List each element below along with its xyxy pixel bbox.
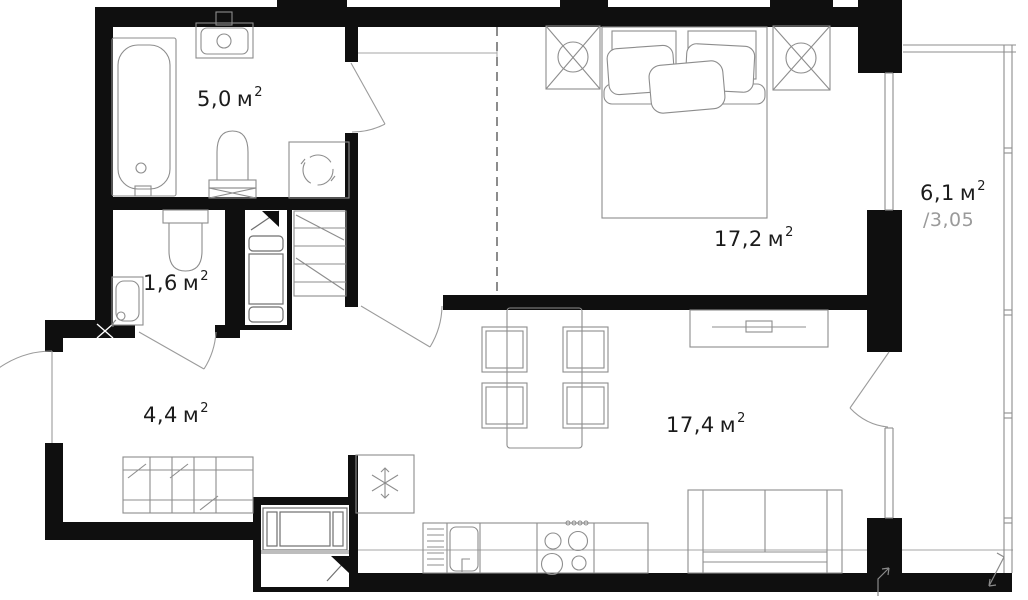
bedroom-window	[885, 73, 893, 210]
room-label-living-kitchen: 17,4м2	[666, 414, 745, 436]
shaft-window-unit	[253, 497, 357, 592]
living-window	[885, 428, 893, 518]
room-label-balcony: 6,1м2	[920, 182, 985, 204]
double-bed	[602, 27, 767, 218]
washing-machine	[289, 142, 349, 198]
snowflake-icon	[372, 468, 398, 498]
sofa	[688, 490, 842, 573]
wc-door	[139, 332, 216, 369]
room-label-wc: 1,6м2	[143, 272, 208, 294]
dining-chair	[563, 327, 608, 372]
balcony-door	[850, 352, 889, 427]
balcony-glazing	[903, 45, 1016, 573]
washer-drum-icon	[301, 155, 335, 185]
floor-plan: 5,0м2 1,6м2 4,4м2 17,2м2 17,4м2 6,1м2 /3…	[0, 0, 1028, 600]
dining-chair	[563, 383, 608, 428]
walls	[45, 0, 1012, 592]
hall-shelving-niche	[294, 211, 346, 296]
floor-plan-drawing	[0, 0, 1028, 600]
bathroom-door	[351, 63, 385, 132]
fridge	[356, 455, 414, 513]
wc-sink	[112, 277, 143, 327]
room-label-bedroom: 17,2м2	[714, 228, 793, 250]
dining-chair	[482, 383, 527, 428]
dining-chair	[482, 327, 527, 372]
nightstand-left	[546, 26, 600, 89]
dish-drainer	[427, 529, 444, 565]
room-label-hallway: 4,4м2	[143, 404, 208, 426]
utility-shaft	[240, 205, 292, 330]
entrance-door	[0, 351, 52, 443]
living-door	[361, 306, 442, 347]
kitchen-counter	[423, 521, 648, 575]
balcony-coefficient-label: /3,05	[923, 211, 974, 230]
wc-toilet	[163, 210, 208, 271]
nightstand-right	[773, 26, 830, 90]
bathroom-toilet	[209, 131, 256, 198]
tv-console	[690, 310, 828, 347]
stove	[542, 521, 589, 575]
glazing-mullions	[1004, 148, 1012, 523]
hall-wardrobe	[123, 457, 253, 513]
dining-table	[482, 308, 608, 448]
bathtub	[112, 38, 176, 196]
room-label-bathroom: 5,0м2	[197, 88, 262, 110]
